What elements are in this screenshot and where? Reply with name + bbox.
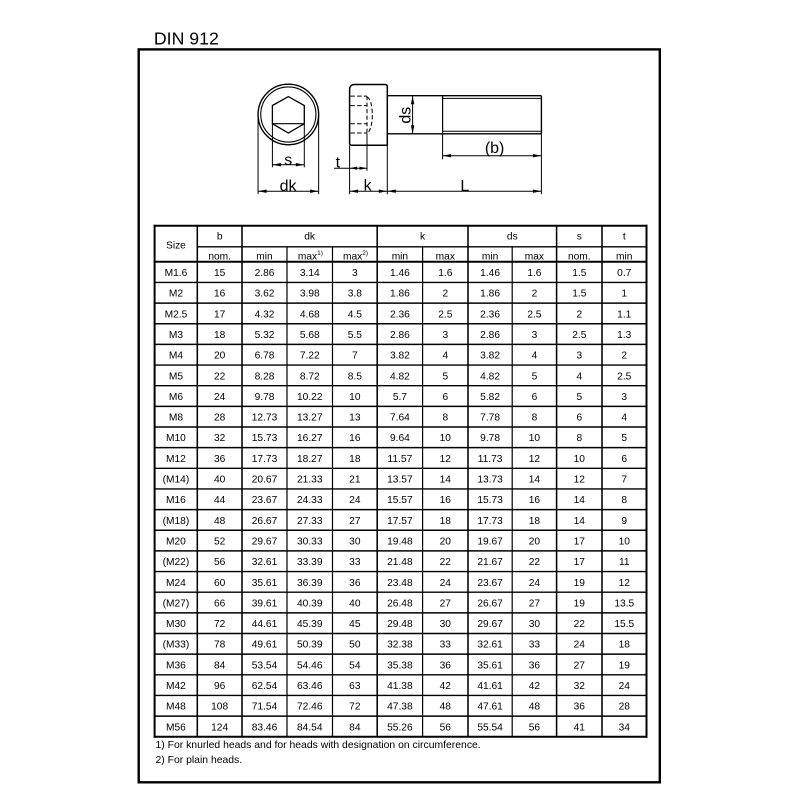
svg-text:24: 24: [574, 640, 586, 651]
svg-text:11: 11: [619, 557, 630, 568]
svg-text:M56: M56: [166, 722, 186, 733]
svg-text:2) For plain heads.: 2) For plain heads.: [156, 755, 243, 766]
svg-text:6: 6: [576, 413, 582, 424]
svg-text:6.78: 6.78: [255, 351, 275, 362]
svg-text:5.32: 5.32: [255, 330, 275, 341]
svg-text:47.61: 47.61: [477, 702, 503, 713]
svg-text:(b): (b): [485, 140, 505, 157]
svg-text:5: 5: [532, 371, 538, 382]
svg-text:22: 22: [440, 557, 452, 568]
svg-text:L: L: [460, 178, 469, 195]
svg-text:45: 45: [349, 619, 361, 630]
svg-text:36: 36: [440, 660, 452, 671]
svg-text:36.39: 36.39: [297, 578, 323, 589]
svg-text:56: 56: [529, 722, 541, 733]
svg-text:54: 54: [349, 660, 361, 671]
svg-text:12.73: 12.73: [252, 413, 278, 424]
svg-text:23.48: 23.48: [387, 578, 413, 589]
svg-text:13: 13: [349, 413, 361, 424]
svg-text:1: 1: [621, 289, 627, 300]
svg-text:45.39: 45.39: [297, 619, 323, 630]
svg-text:4.82: 4.82: [390, 371, 410, 382]
svg-text:34: 34: [619, 722, 631, 733]
svg-text:56: 56: [440, 722, 452, 733]
svg-text:7: 7: [352, 351, 358, 362]
svg-text:5.7: 5.7: [393, 392, 407, 403]
svg-text:M16: M16: [166, 495, 186, 506]
svg-text:54.46: 54.46: [297, 660, 323, 671]
svg-text:27: 27: [529, 598, 541, 609]
svg-text:19.48: 19.48: [387, 536, 413, 547]
svg-text:nom.: nom.: [208, 251, 231, 262]
svg-text:1) For knurled heads and for h: 1) For knurled heads and for heads with …: [156, 740, 481, 751]
svg-text:12: 12: [529, 454, 541, 465]
svg-text:23.67: 23.67: [477, 578, 503, 589]
svg-text:10: 10: [440, 433, 452, 444]
svg-text:3: 3: [532, 330, 538, 341]
svg-text:50: 50: [349, 640, 361, 651]
svg-text:ds: ds: [507, 232, 518, 243]
svg-text:48: 48: [214, 516, 226, 527]
svg-text:50.39: 50.39: [297, 640, 323, 651]
svg-text:17: 17: [214, 309, 226, 320]
svg-text:19: 19: [574, 578, 586, 589]
svg-text:(M22): (M22): [163, 557, 190, 568]
svg-text:4.68: 4.68: [300, 309, 320, 320]
svg-text:12: 12: [619, 578, 631, 589]
svg-text:18: 18: [214, 330, 226, 341]
svg-text:33: 33: [349, 557, 361, 568]
svg-text:17.73: 17.73: [252, 454, 278, 465]
svg-text:28: 28: [214, 413, 226, 424]
svg-text:33.39: 33.39: [297, 557, 323, 568]
svg-text:41.61: 41.61: [477, 681, 503, 692]
svg-text:29.67: 29.67: [477, 619, 503, 630]
svg-text:3.62: 3.62: [255, 289, 275, 300]
svg-text:40: 40: [214, 475, 226, 486]
svg-text:16: 16: [440, 495, 452, 506]
svg-text:83.46: 83.46: [252, 722, 278, 733]
svg-text:36: 36: [529, 660, 541, 671]
svg-text:9.78: 9.78: [480, 433, 500, 444]
svg-text:13.57: 13.57: [387, 475, 413, 486]
svg-text:2: 2: [621, 351, 627, 362]
svg-text:9.64: 9.64: [390, 433, 410, 444]
svg-text:2.36: 2.36: [480, 309, 500, 320]
svg-text:1.46: 1.46: [390, 268, 410, 279]
svg-text:3: 3: [442, 330, 448, 341]
svg-text:27: 27: [349, 516, 361, 527]
svg-text:1.86: 1.86: [390, 289, 410, 300]
svg-text:24: 24: [214, 392, 226, 403]
svg-text:8.72: 8.72: [300, 371, 320, 382]
svg-text:7: 7: [621, 475, 627, 486]
svg-text:1.6: 1.6: [527, 268, 541, 279]
svg-text:108: 108: [211, 702, 228, 713]
svg-text:29.67: 29.67: [252, 536, 278, 547]
svg-text:19: 19: [574, 598, 586, 609]
svg-text:2.5: 2.5: [617, 371, 631, 382]
svg-text:4: 4: [621, 413, 627, 424]
svg-text:15.5: 15.5: [614, 619, 634, 630]
svg-text:44: 44: [214, 495, 226, 506]
svg-text:1.86: 1.86: [480, 289, 500, 300]
svg-text:1.6: 1.6: [438, 268, 452, 279]
svg-text:124: 124: [211, 722, 228, 733]
svg-text:15.73: 15.73: [477, 495, 503, 506]
svg-text:M2.5: M2.5: [165, 309, 188, 320]
svg-text:M6: M6: [169, 392, 183, 403]
svg-text:max2): max2): [343, 250, 368, 262]
svg-text:nom.: nom.: [568, 251, 591, 262]
svg-text:2.36: 2.36: [390, 309, 410, 320]
svg-text:22: 22: [529, 557, 541, 568]
svg-text:7.64: 7.64: [390, 413, 410, 424]
svg-text:14: 14: [574, 516, 586, 527]
svg-text:42: 42: [529, 681, 541, 692]
svg-text:M3: M3: [169, 330, 183, 341]
svg-text:M4: M4: [169, 351, 183, 362]
svg-text:35.61: 35.61: [252, 578, 278, 589]
svg-text:3: 3: [621, 392, 627, 403]
svg-text:2.5: 2.5: [438, 309, 452, 320]
svg-text:52: 52: [214, 536, 226, 547]
svg-text:3.14: 3.14: [300, 268, 320, 279]
svg-text:2.5: 2.5: [527, 309, 541, 320]
svg-text:26.67: 26.67: [477, 598, 503, 609]
svg-text:21.33: 21.33: [297, 475, 323, 486]
svg-text:42: 42: [440, 681, 452, 692]
svg-text:max: max: [525, 251, 544, 262]
svg-text:22: 22: [574, 619, 586, 630]
svg-text:20.67: 20.67: [252, 475, 278, 486]
svg-text:21.67: 21.67: [477, 557, 503, 568]
svg-text:1.1: 1.1: [617, 309, 631, 320]
svg-text:18.27: 18.27: [297, 454, 323, 465]
svg-text:32: 32: [574, 681, 586, 692]
svg-text:12: 12: [440, 454, 452, 465]
svg-text:63: 63: [349, 681, 361, 692]
svg-text:24: 24: [529, 578, 541, 589]
svg-text:8: 8: [442, 413, 448, 424]
svg-text:39.61: 39.61: [252, 598, 278, 609]
svg-text:M2: M2: [169, 289, 183, 300]
svg-text:M8: M8: [169, 413, 183, 424]
svg-text:10.22: 10.22: [297, 392, 323, 403]
svg-text:s: s: [284, 152, 292, 169]
svg-text:71.54: 71.54: [252, 702, 278, 713]
svg-text:24.33: 24.33: [297, 495, 323, 506]
svg-text:t: t: [336, 155, 341, 172]
svg-text:(M18): (M18): [163, 516, 190, 527]
svg-text:35.61: 35.61: [477, 660, 503, 671]
svg-text:29.48: 29.48: [387, 619, 413, 630]
svg-text:2: 2: [532, 289, 538, 300]
svg-text:78: 78: [214, 640, 226, 651]
svg-text:6: 6: [621, 454, 627, 465]
svg-text:17: 17: [574, 536, 586, 547]
svg-text:41.38: 41.38: [387, 681, 413, 692]
svg-text:min: min: [256, 251, 272, 262]
svg-text:M30: M30: [166, 619, 186, 630]
svg-text:M36: M36: [166, 660, 186, 671]
svg-text:ds: ds: [398, 107, 415, 124]
svg-text:10: 10: [529, 433, 541, 444]
svg-text:dk: dk: [280, 178, 298, 195]
svg-text:19.67: 19.67: [477, 536, 503, 547]
svg-text:27.33: 27.33: [297, 516, 323, 527]
svg-text:30: 30: [349, 536, 361, 547]
svg-text:max1): max1): [298, 250, 323, 262]
svg-text:27: 27: [440, 598, 452, 609]
svg-text:26.67: 26.67: [252, 516, 278, 527]
svg-text:13.5: 13.5: [614, 598, 634, 609]
svg-text:22: 22: [214, 371, 226, 382]
svg-text:4: 4: [576, 371, 582, 382]
svg-text:s: s: [577, 232, 582, 243]
svg-text:15.57: 15.57: [387, 495, 413, 506]
svg-text:1.46: 1.46: [480, 268, 500, 279]
svg-text:(M14): (M14): [163, 475, 190, 486]
svg-text:11.57: 11.57: [388, 454, 413, 465]
svg-text:6: 6: [442, 392, 448, 403]
svg-text:24: 24: [349, 495, 361, 506]
svg-text:18: 18: [349, 454, 361, 465]
svg-text:17.57: 17.57: [387, 516, 413, 527]
svg-text:49.61: 49.61: [252, 640, 278, 651]
svg-text:5.82: 5.82: [480, 392, 500, 403]
svg-text:84: 84: [349, 722, 361, 733]
svg-text:13.27: 13.27: [297, 413, 323, 424]
svg-text:40.39: 40.39: [297, 598, 323, 609]
svg-text:84.54: 84.54: [297, 722, 323, 733]
svg-text:1.3: 1.3: [617, 330, 631, 341]
svg-text:3.82: 3.82: [480, 351, 500, 362]
svg-text:4.82: 4.82: [480, 371, 500, 382]
svg-text:32.61: 32.61: [252, 557, 278, 568]
svg-text:21: 21: [349, 475, 361, 486]
svg-text:24: 24: [440, 578, 452, 589]
svg-text:18: 18: [440, 516, 452, 527]
svg-text:53.54: 53.54: [252, 660, 278, 671]
svg-text:15.73: 15.73: [252, 433, 278, 444]
svg-text:3: 3: [576, 351, 582, 362]
svg-text:2.5: 2.5: [572, 330, 586, 341]
svg-text:48: 48: [529, 702, 541, 713]
svg-text:8.28: 8.28: [255, 371, 275, 382]
svg-text:96: 96: [214, 681, 226, 692]
svg-text:36: 36: [349, 578, 361, 589]
svg-text:23.67: 23.67: [252, 495, 278, 506]
svg-text:5.68: 5.68: [300, 330, 320, 341]
svg-text:27: 27: [574, 660, 586, 671]
svg-text:10: 10: [619, 536, 631, 547]
svg-text:6: 6: [532, 392, 538, 403]
svg-text:36: 36: [214, 454, 226, 465]
svg-text:4: 4: [532, 351, 538, 362]
svg-text:17: 17: [574, 557, 586, 568]
svg-text:9.78: 9.78: [255, 392, 275, 403]
svg-text:12: 12: [574, 475, 586, 486]
svg-text:47.38: 47.38: [387, 702, 413, 713]
svg-text:33: 33: [440, 640, 452, 651]
svg-text:3.8: 3.8: [348, 289, 362, 300]
svg-text:41: 41: [574, 722, 586, 733]
svg-text:2: 2: [442, 289, 448, 300]
svg-text:M42: M42: [166, 681, 186, 692]
svg-text:72.46: 72.46: [297, 702, 323, 713]
svg-text:30: 30: [440, 619, 452, 630]
svg-text:t: t: [623, 232, 626, 243]
svg-text:10: 10: [574, 454, 586, 465]
svg-text:(M27): (M27): [163, 598, 190, 609]
svg-text:8: 8: [532, 413, 538, 424]
svg-text:M24: M24: [166, 578, 186, 589]
svg-text:M12: M12: [166, 454, 186, 465]
svg-text:8.5: 8.5: [348, 371, 362, 382]
svg-text:1.5: 1.5: [572, 289, 586, 300]
svg-text:26.48: 26.48: [387, 598, 413, 609]
svg-text:9: 9: [621, 516, 627, 527]
svg-text:35.38: 35.38: [387, 660, 413, 671]
svg-text:k: k: [420, 232, 426, 243]
svg-text:62.54: 62.54: [252, 681, 278, 692]
svg-text:min: min: [392, 251, 408, 262]
svg-text:33: 33: [529, 640, 541, 651]
svg-text:30: 30: [529, 619, 541, 630]
svg-text:2.86: 2.86: [390, 330, 410, 341]
svg-text:7.22: 7.22: [300, 351, 320, 362]
svg-text:40: 40: [349, 598, 361, 609]
svg-text:18: 18: [529, 516, 541, 527]
svg-text:5.5: 5.5: [348, 330, 362, 341]
svg-text:4.32: 4.32: [255, 309, 275, 320]
svg-text:16.27: 16.27: [297, 433, 323, 444]
svg-text:2.86: 2.86: [255, 268, 275, 279]
svg-text:60: 60: [214, 578, 226, 589]
svg-text:28: 28: [619, 702, 631, 713]
svg-text:55.54: 55.54: [477, 722, 503, 733]
svg-text:24: 24: [619, 681, 631, 692]
svg-text:0.7: 0.7: [617, 268, 631, 279]
svg-text:32: 32: [214, 433, 226, 444]
svg-text:48: 48: [440, 702, 452, 713]
svg-text:max: max: [436, 251, 455, 262]
svg-text:20: 20: [529, 536, 541, 547]
svg-text:30.33: 30.33: [297, 536, 323, 547]
svg-text:18: 18: [619, 640, 631, 651]
svg-text:4: 4: [442, 351, 448, 362]
svg-text:20: 20: [440, 536, 452, 547]
svg-text:7.78: 7.78: [480, 413, 500, 424]
svg-text:b: b: [217, 232, 223, 243]
svg-text:63.46: 63.46: [297, 681, 323, 692]
svg-text:14: 14: [440, 475, 452, 486]
svg-text:5: 5: [576, 392, 582, 403]
svg-text:8: 8: [621, 495, 627, 506]
svg-text:(M33): (M33): [163, 640, 190, 651]
svg-text:56: 56: [214, 557, 226, 568]
svg-text:3.98: 3.98: [300, 289, 320, 300]
svg-text:72: 72: [349, 702, 361, 713]
svg-text:M1.6: M1.6: [165, 268, 188, 279]
svg-text:14: 14: [529, 475, 541, 486]
svg-text:M20: M20: [166, 536, 186, 547]
svg-text:Size: Size: [166, 241, 186, 252]
svg-text:11.73: 11.73: [478, 454, 503, 465]
svg-text:3.82: 3.82: [390, 351, 410, 362]
svg-text:16: 16: [349, 433, 361, 444]
svg-text:14: 14: [574, 495, 586, 506]
svg-text:8: 8: [576, 433, 582, 444]
svg-text:66: 66: [214, 598, 226, 609]
svg-text:k: k: [364, 178, 373, 195]
svg-text:21.48: 21.48: [387, 557, 413, 568]
svg-text:min: min: [616, 251, 632, 262]
svg-text:dk: dk: [304, 232, 316, 243]
svg-text:13.73: 13.73: [477, 475, 503, 486]
svg-text:5: 5: [621, 433, 627, 444]
svg-text:M5: M5: [169, 371, 183, 382]
svg-text:2: 2: [576, 309, 582, 320]
svg-text:44.61: 44.61: [252, 619, 278, 630]
svg-text:55.26: 55.26: [387, 722, 413, 733]
svg-text:5: 5: [442, 371, 448, 382]
svg-text:16: 16: [529, 495, 541, 506]
svg-text:32.38: 32.38: [387, 640, 413, 651]
svg-text:15: 15: [214, 268, 226, 279]
svg-text:M48: M48: [166, 702, 186, 713]
svg-text:84: 84: [214, 660, 226, 671]
svg-text:4.5: 4.5: [348, 309, 362, 320]
svg-text:1.5: 1.5: [572, 268, 586, 279]
svg-text:17.73: 17.73: [477, 516, 503, 527]
svg-text:10: 10: [349, 392, 361, 403]
svg-text:32.61: 32.61: [477, 640, 503, 651]
svg-text:19: 19: [619, 660, 631, 671]
svg-text:min: min: [482, 251, 498, 262]
svg-text:16: 16: [214, 289, 226, 300]
svg-text:36: 36: [574, 702, 586, 713]
svg-text:DIN 912: DIN 912: [154, 29, 219, 49]
svg-text:20: 20: [214, 351, 226, 362]
svg-text:M10: M10: [166, 433, 186, 444]
svg-text:3: 3: [352, 268, 358, 279]
svg-text:2.86: 2.86: [480, 330, 500, 341]
svg-text:72: 72: [214, 619, 226, 630]
